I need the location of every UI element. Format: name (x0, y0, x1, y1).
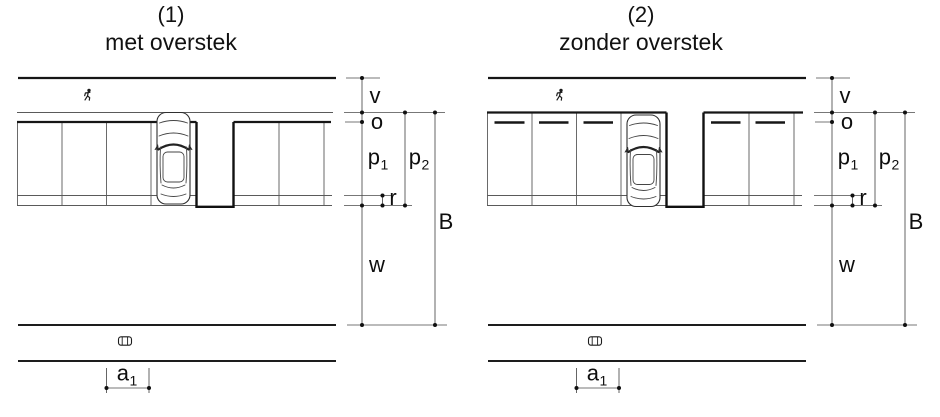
dim-label-v: v (370, 85, 381, 107)
dim-label-a1: a1 (587, 363, 608, 388)
dim-label-w: w (839, 254, 855, 276)
roadway-lines (18, 325, 336, 361)
dim-label-a1: a1 (117, 363, 138, 388)
parking-plan-drawing-2 (470, 0, 940, 417)
empty-bay-notch (667, 113, 704, 207)
dim-label-B: B (909, 211, 924, 233)
parking-dimensions-figure: (1) met overstek (0, 0, 940, 417)
dim-label-v: v (840, 85, 851, 107)
roadway-lines (488, 325, 806, 361)
dim-label-B: B (439, 211, 454, 233)
car-icon (119, 337, 132, 345)
parked-car (625, 115, 662, 207)
panel-1-met-overstek: (1) met overstek (0, 0, 470, 417)
dim-label-o: o (841, 111, 853, 133)
pedestrian-icon (85, 89, 91, 100)
parking-plan-drawing-1 (0, 0, 470, 417)
empty-bay-notch (197, 122, 234, 207)
dim-label-r: r (859, 187, 866, 209)
parked-car (155, 113, 192, 205)
dim-label-w: w (369, 254, 385, 276)
dim-label-p1: p1 (368, 147, 389, 172)
car-icon (589, 337, 602, 345)
dim-label-o: o (371, 111, 383, 133)
pedestrian-icon (557, 89, 563, 100)
dim-label-p1: p1 (838, 147, 859, 172)
dim-label-r: r (389, 187, 396, 209)
panel-2-zonder-overstek: (2) zonder overstek (470, 0, 940, 417)
dim-label-p2: p2 (879, 147, 900, 172)
dim-label-p2: p2 (409, 147, 430, 172)
